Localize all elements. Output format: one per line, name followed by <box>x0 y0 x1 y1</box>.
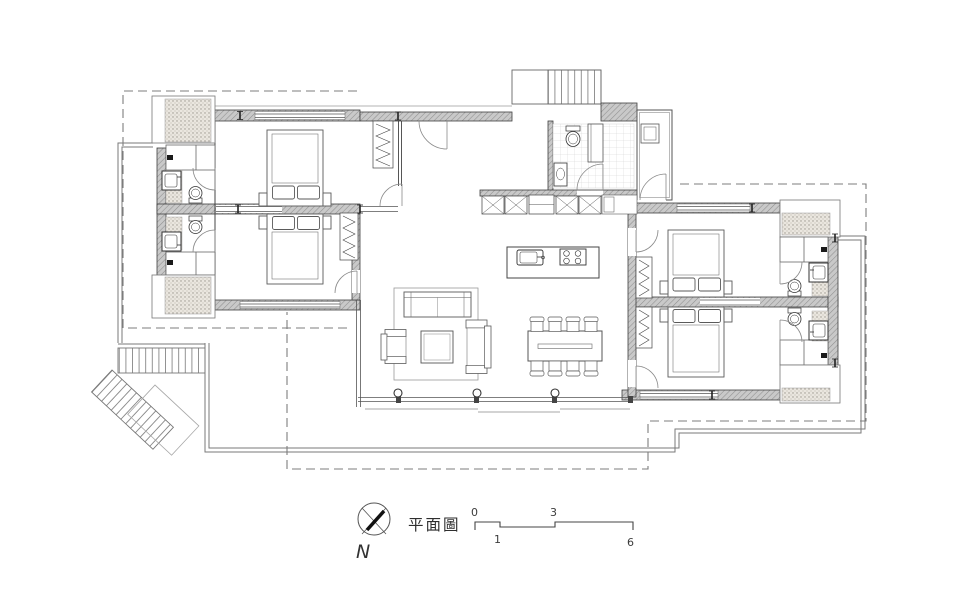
dining-set <box>528 317 602 376</box>
coffee-table <box>421 331 453 363</box>
scale-tick-0: 0 <box>471 506 478 519</box>
sofa <box>404 292 471 317</box>
bed-2 <box>259 214 331 284</box>
bath-cabinet <box>588 124 603 162</box>
toilet-icon <box>189 216 202 234</box>
north-arrow-icon: N <box>356 503 390 563</box>
living-set <box>381 288 491 380</box>
sink-icon <box>809 321 828 340</box>
kitchen-sink-icon <box>517 250 544 265</box>
closet-row <box>482 195 637 214</box>
scale-tick-3: 3 <box>550 506 557 519</box>
scale-tick-1: 1 <box>494 533 501 546</box>
vanity-sink-icon <box>554 163 567 186</box>
floor-plan-drawing: N 平面圖 0 3 1 6 <box>0 0 962 598</box>
scale-tick-6: 6 <box>627 536 634 549</box>
dining-table <box>528 331 602 361</box>
exterior-stair <box>92 344 205 455</box>
toilet-icon <box>788 308 801 326</box>
drawing-title: 平面圖 <box>408 516 461 534</box>
sink-icon <box>162 171 181 190</box>
sink-icon <box>809 263 828 282</box>
north-label: N <box>356 541 370 563</box>
toilet-icon <box>189 187 202 204</box>
bed-4 <box>660 307 732 377</box>
armchair <box>381 330 406 364</box>
central-bathroom <box>553 124 634 190</box>
bed-1 <box>259 130 331 206</box>
walls <box>157 103 838 400</box>
utility-room <box>640 124 666 200</box>
kitchen-island <box>507 247 599 278</box>
column-circles <box>394 389 559 397</box>
loveseat <box>466 320 491 374</box>
floor-plan-sheet: N 平面圖 0 3 1 6 <box>0 0 962 598</box>
scale-bar: 0 3 1 6 <box>471 506 634 549</box>
bed-3 <box>660 230 732 297</box>
entry-stair <box>512 70 601 104</box>
toilet-icon <box>566 126 580 147</box>
sink-icon <box>162 232 181 251</box>
planters-and-counters <box>152 96 840 403</box>
